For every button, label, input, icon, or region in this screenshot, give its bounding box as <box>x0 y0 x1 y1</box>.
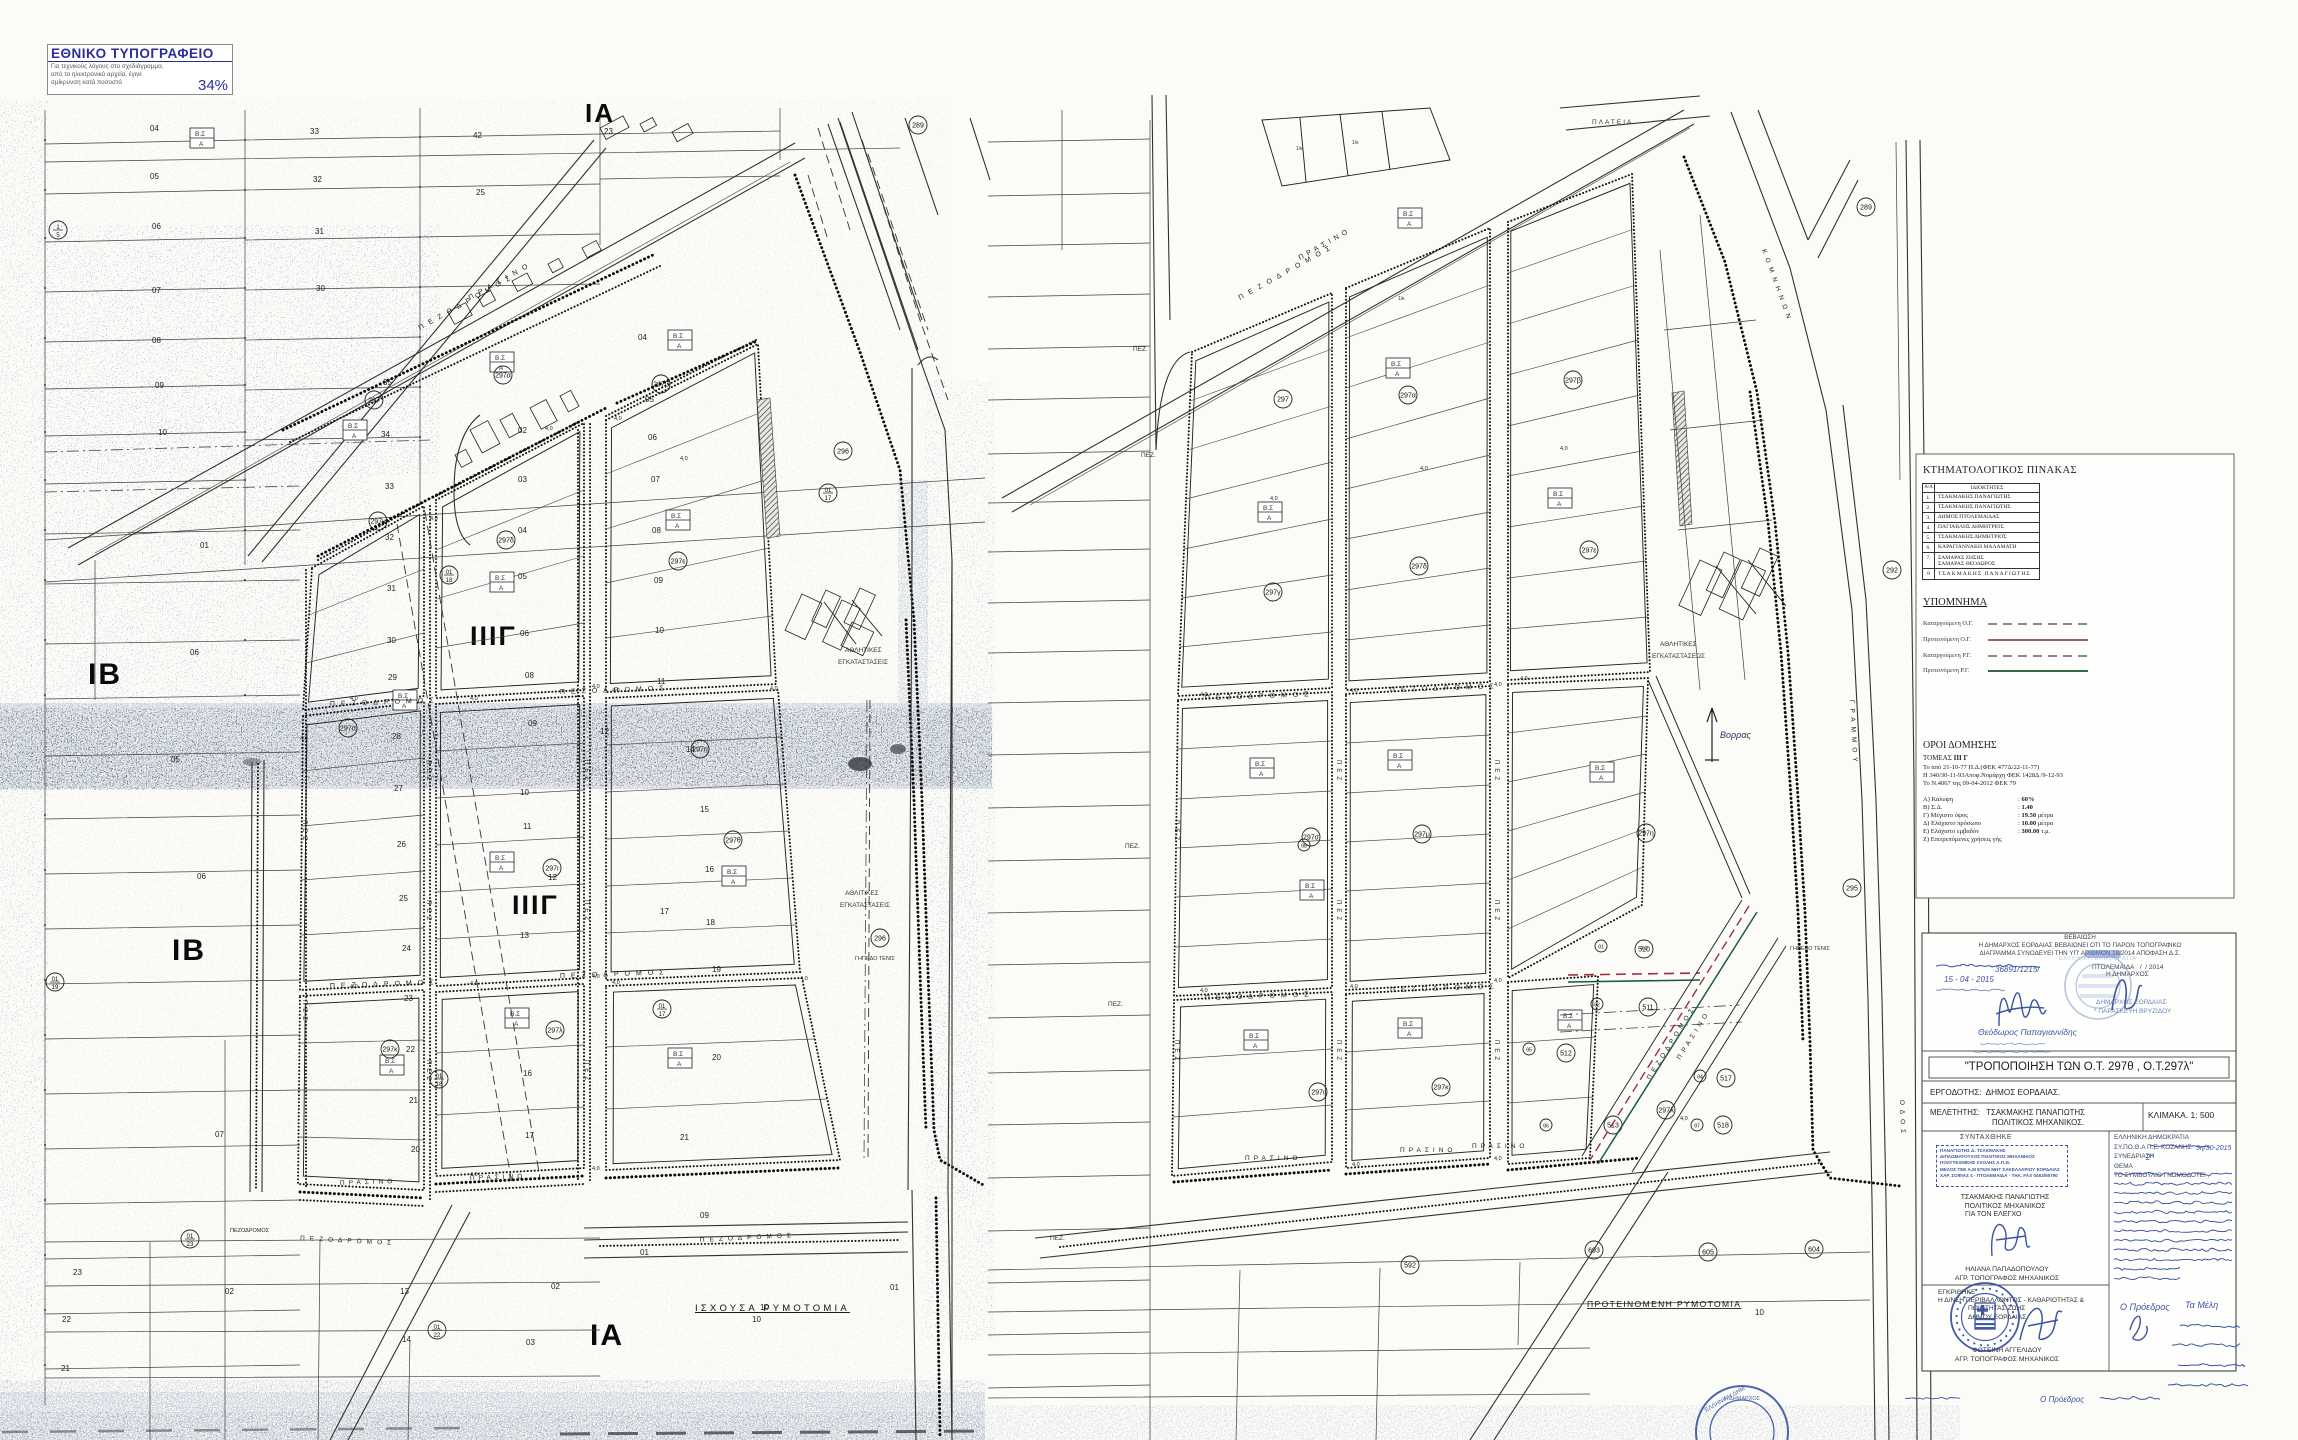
svg-text:2°: 2° <box>2145 1153 2154 1162</box>
svg-text:ΔΗΜΑΡΧΟΣ ΕΟΡΔΑΙΑΣ: ΔΗΜΑΡΧΟΣ ΕΟΡΔΑΙΑΣ <box>2096 999 2166 1006</box>
svg-text:Τα Μέλη: Τα Μέλη <box>2185 1300 2218 1310</box>
svg-text:Ο Πρόεδρος: Ο Πρόεδρος <box>2040 1395 2084 1404</box>
svg-text:Θεόδωρος Παπαγιαννίδης: Θεόδωρος Παπαγιαννίδης <box>1978 1027 2078 1037</box>
svg-text:Ο Πρόεδρος: Ο Πρόεδρος <box>2120 1302 2170 1312</box>
svg-text:3η/30-2015: 3η/30-2015 <box>2196 1145 2232 1152</box>
svg-text:* ΠΑΡΑΣΚΕΥΗ ΒΡΥΖΙΔΟΥ: * ΠΑΡΑΣΚΕΥΗ ΒΡΥΖΙΔΟΥ <box>2094 1008 2172 1015</box>
svg-text:Η ΔΗΜΑΡΧΟΣ: Η ΔΗΜΑΡΧΟΣ <box>1724 1396 1761 1402</box>
svg-text:ΕΛΛΗΝΙΚΗ ΔΗΜΟΚΡΑΤΙΑ: ΕΛΛΗΝΙΚΗ ΔΗΜΟΚΡΑΤΙΑ <box>2059 956 2137 962</box>
svg-text:36891/1215/: 36891/1215/ <box>1995 965 2040 974</box>
svg-text:15 - 04 - 2015: 15 - 04 - 2015 <box>1944 975 1994 984</box>
